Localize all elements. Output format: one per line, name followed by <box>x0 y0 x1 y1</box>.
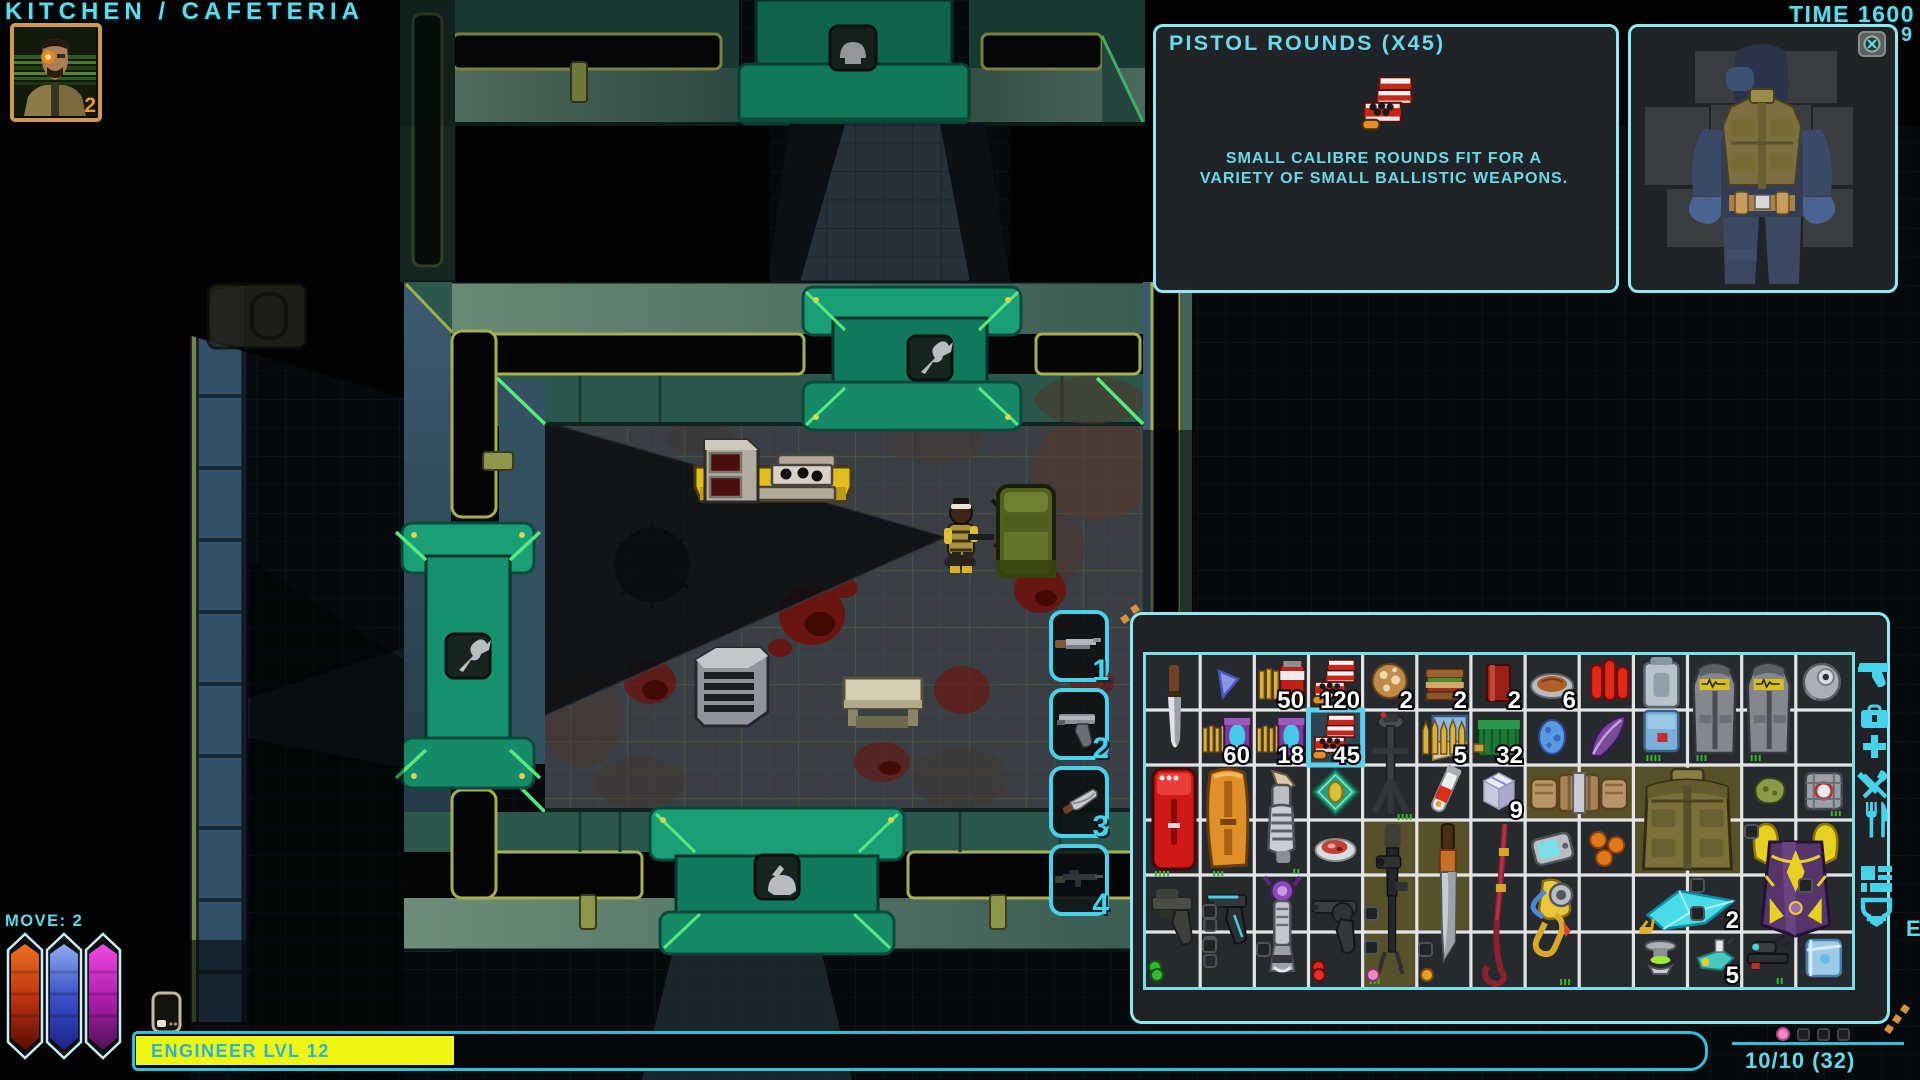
svg-text:45: 45 <box>1333 742 1360 769</box>
svg-text:9: 9 <box>1510 797 1523 824</box>
svg-text:6: 6 <box>1563 687 1576 714</box>
svg-text:2: 2 <box>1400 687 1413 714</box>
svg-text:2: 2 <box>1508 687 1521 714</box>
svg-text:60: 60 <box>1223 742 1250 769</box>
svg-text:5: 5 <box>1454 742 1467 769</box>
svg-text:5: 5 <box>1726 962 1739 987</box>
svg-text:120: 120 <box>1320 687 1360 714</box>
svg-text:18: 18 <box>1277 742 1304 769</box>
svg-text:50: 50 <box>1277 687 1304 714</box>
svg-text:2: 2 <box>1726 907 1739 934</box>
svg-text:32: 32 <box>1496 742 1523 769</box>
svg-text:2: 2 <box>1454 687 1467 714</box>
